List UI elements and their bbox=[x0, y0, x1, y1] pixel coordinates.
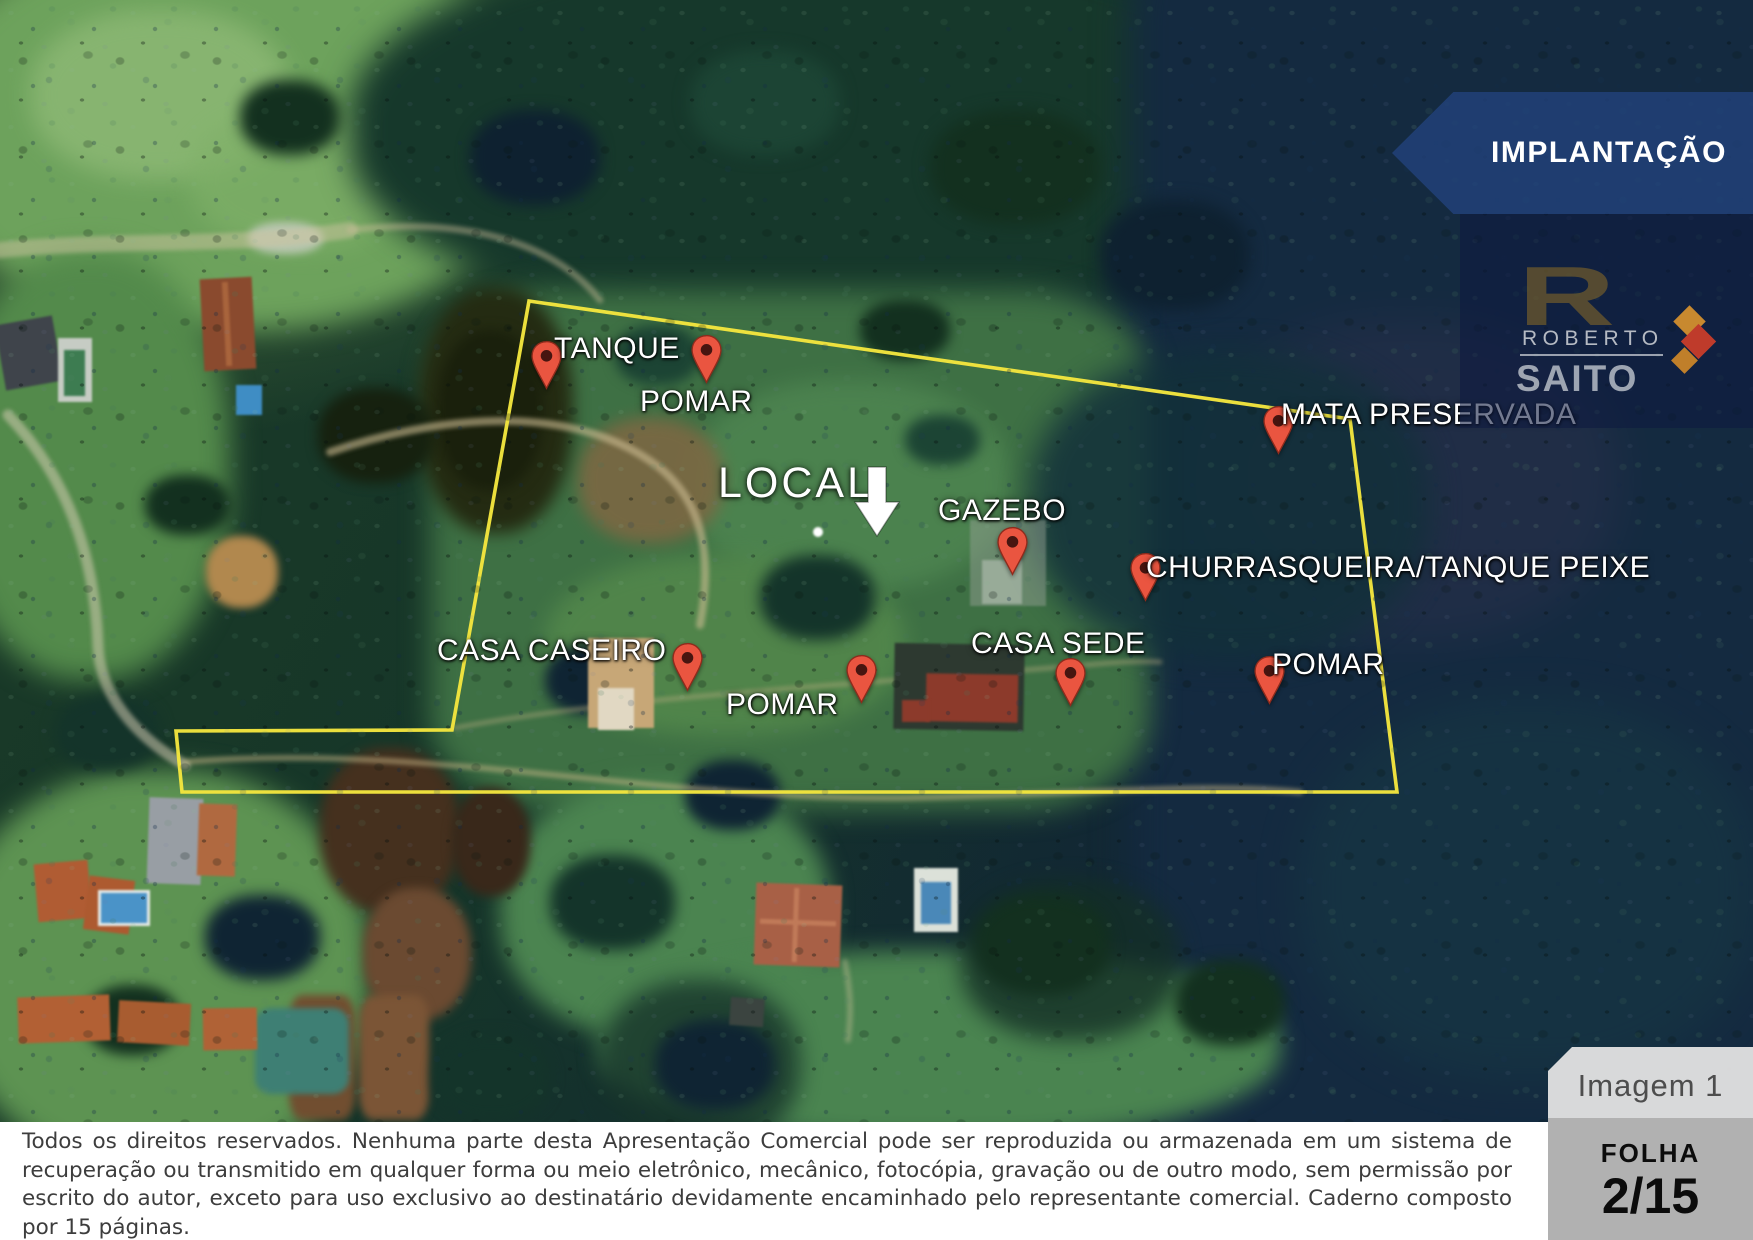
local-label: LOCAL bbox=[718, 459, 874, 508]
dirt-road bbox=[350, 226, 600, 300]
presentation-page: TANQUE POMAR MATA PRESERVADA GAZEBO CHUR… bbox=[0, 0, 1753, 1240]
map-label-casa-caseiro: CASA CASEIRO bbox=[437, 635, 666, 667]
building-roof bbox=[17, 994, 111, 1043]
building-roof bbox=[0, 315, 63, 390]
dirt-road bbox=[0, 230, 350, 250]
terrain-patch bbox=[813, 527, 823, 537]
map-pin-pomar-center bbox=[845, 652, 878, 706]
copyright-text: Todos os direitos reservados. Nenhuma pa… bbox=[22, 1128, 1512, 1240]
image-badge-label: Imagem 1 bbox=[1578, 1062, 1724, 1104]
dirt-road bbox=[330, 421, 705, 625]
brand-logo: R ROBERTO SAITO bbox=[1460, 214, 1753, 428]
building-roof bbox=[197, 803, 237, 876]
map-label-pomar-right: POMAR bbox=[1272, 649, 1385, 681]
logo-name-top: ROBERTO bbox=[1522, 327, 1664, 351]
building-roof bbox=[598, 688, 634, 730]
sheet-badge-label: FOLHA bbox=[1601, 1138, 1701, 1169]
map-label-tanque: TANQUE bbox=[554, 333, 680, 365]
building-roof bbox=[902, 700, 930, 722]
map-pin-casa-caseiro bbox=[671, 640, 704, 694]
building-roof bbox=[729, 997, 765, 1027]
section-banner-title: IMPLANTAÇÃO bbox=[1491, 136, 1727, 170]
pool bbox=[64, 350, 85, 396]
map-label-casa-sede: CASA SEDE bbox=[971, 628, 1146, 660]
image-badge: Imagem 1 bbox=[1548, 1047, 1753, 1118]
map-pin-gazebo bbox=[996, 524, 1029, 578]
pool bbox=[98, 890, 150, 926]
satellite-map: TANQUE POMAR MATA PRESERVADA GAZEBO CHUR… bbox=[0, 0, 1753, 1122]
dirt-road bbox=[845, 962, 850, 1040]
sheet-badge-number: 2/15 bbox=[1602, 1171, 1699, 1221]
map-label-pomar-center: POMAR bbox=[726, 689, 839, 721]
map-label-pomar-top: POMAR bbox=[640, 386, 753, 418]
map-pin-casa-sede bbox=[1054, 655, 1087, 709]
building-roof bbox=[117, 1000, 191, 1046]
building-roof bbox=[203, 1008, 258, 1051]
map-label-churrasqueira: CHURRASQUEIRA/TANQUE PEIXE bbox=[1146, 552, 1650, 584]
pool bbox=[921, 882, 951, 924]
building-roof bbox=[926, 673, 1019, 723]
footer: Todos os direitos reservados. Nenhuma pa… bbox=[0, 1122, 1753, 1240]
logo-monogram: R bbox=[1518, 254, 1615, 338]
logo-underline bbox=[1520, 354, 1663, 356]
building-roof bbox=[34, 860, 93, 922]
map-label-gazebo: GAZEBO bbox=[938, 495, 1066, 527]
logo-name-bottom: SAITO bbox=[1516, 358, 1638, 400]
pool bbox=[236, 385, 262, 415]
section-banner: IMPLANTAÇÃO bbox=[1392, 92, 1753, 214]
map-pin-pomar-top bbox=[690, 332, 723, 386]
building-roof bbox=[147, 797, 204, 885]
sheet-badge: FOLHA 2/15 bbox=[1548, 1118, 1753, 1240]
down-arrow-icon bbox=[853, 466, 901, 538]
dirt-road bbox=[8, 415, 185, 765]
